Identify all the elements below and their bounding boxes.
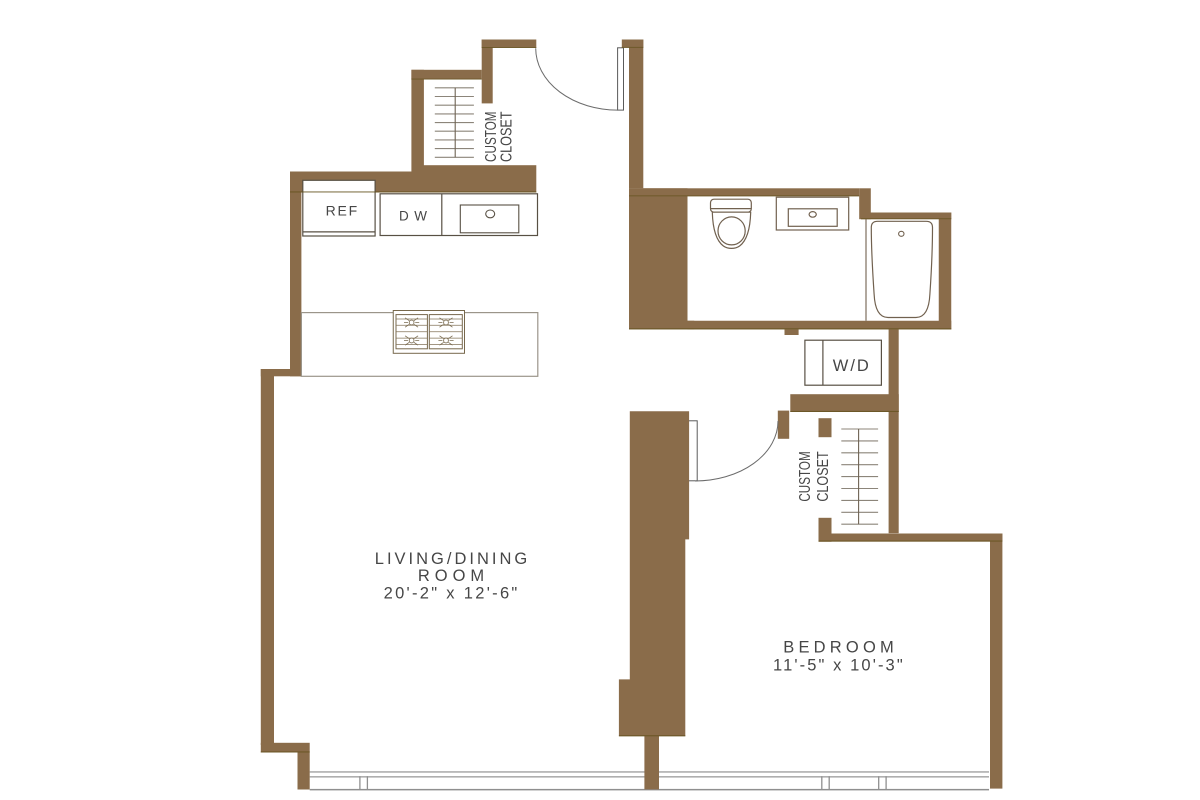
svg-text:BEDROOM: BEDROOM bbox=[783, 639, 898, 657]
svg-text:CUSTOM: CUSTOM bbox=[483, 111, 500, 162]
svg-text:REF: REF bbox=[326, 203, 359, 219]
svg-text:LIVING/DINING: LIVING/DINING bbox=[375, 550, 530, 568]
svg-text:20'-2" x 12'-6": 20'-2" x 12'-6" bbox=[384, 585, 520, 603]
svg-text:ROOM: ROOM bbox=[418, 567, 489, 585]
svg-text:W/D: W/D bbox=[833, 357, 871, 375]
svg-text:DW: DW bbox=[399, 208, 433, 223]
svg-text:11'-5" x 10'-3": 11'-5" x 10'-3" bbox=[773, 657, 905, 675]
svg-text:CLOSET: CLOSET bbox=[815, 451, 832, 501]
svg-text:CUSTOM: CUSTOM bbox=[797, 451, 814, 501]
svg-text:CLOSET: CLOSET bbox=[498, 111, 515, 162]
